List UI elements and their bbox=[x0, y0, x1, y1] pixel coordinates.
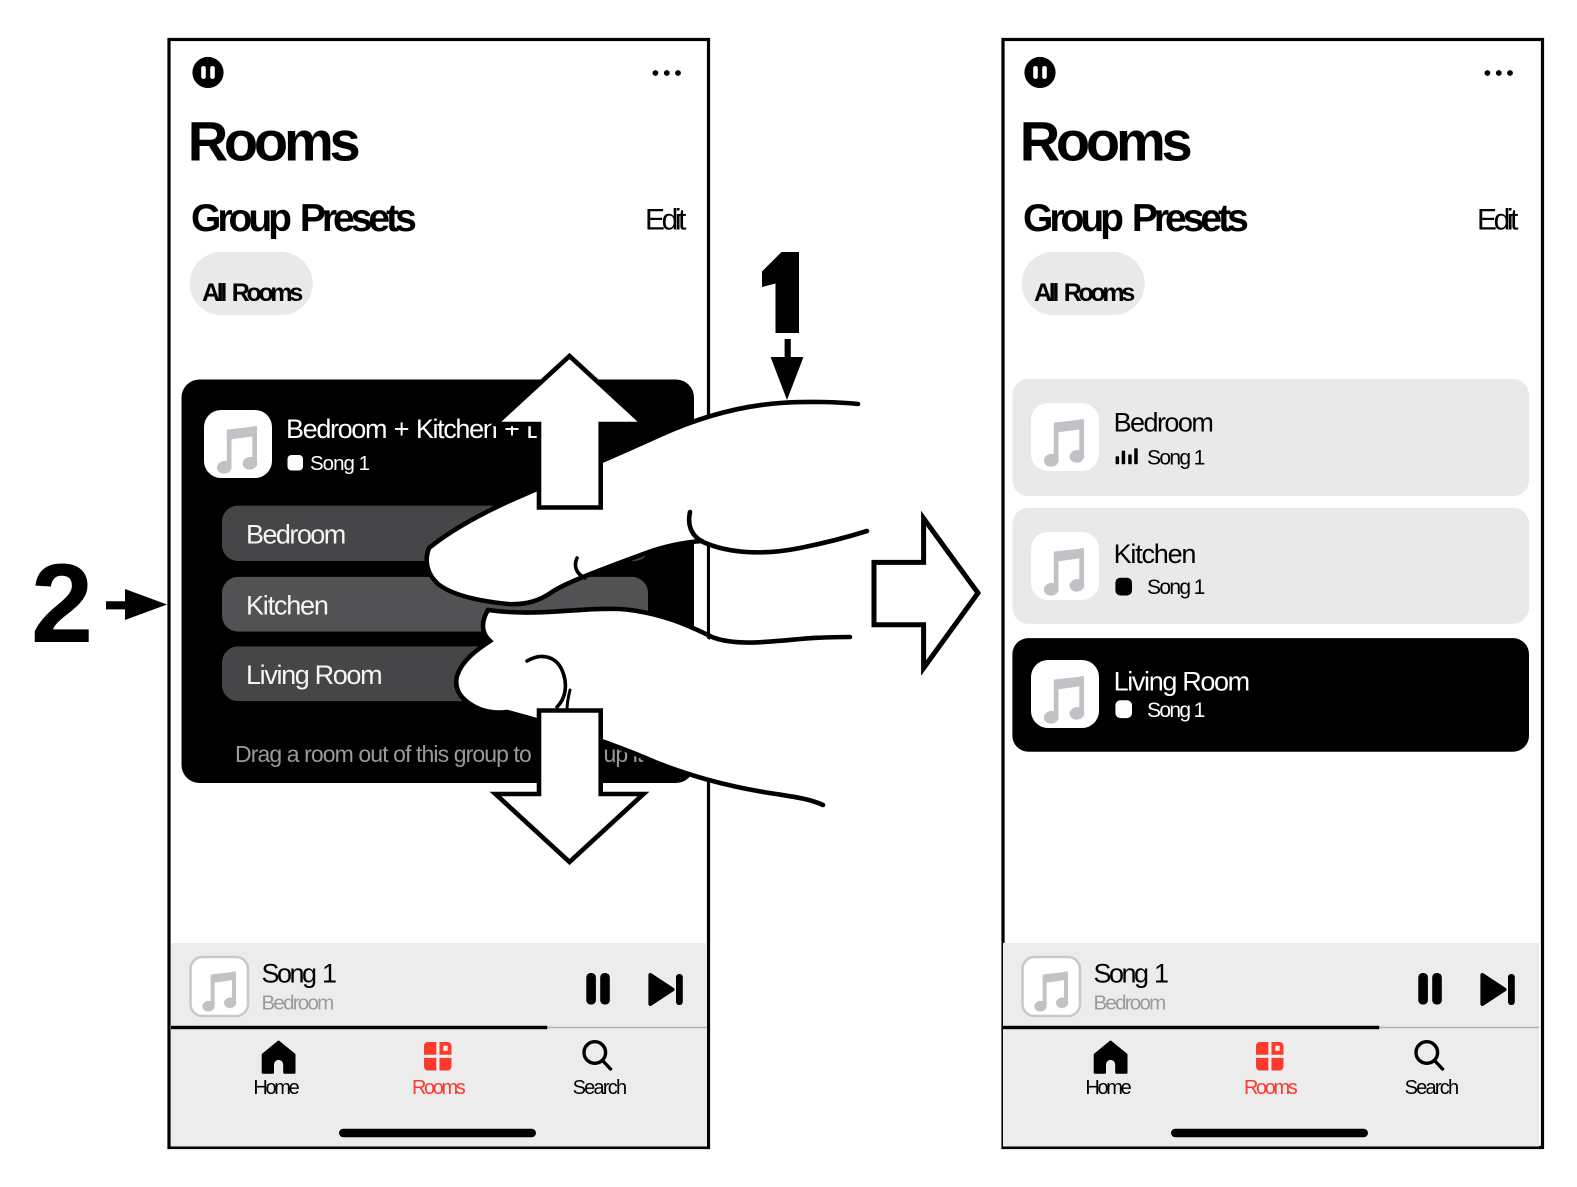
svg-text:Song 1: Song 1 bbox=[1147, 447, 1205, 470]
svg-text:Kitchen: Kitchen bbox=[1114, 539, 1196, 569]
svg-text:Home: Home bbox=[253, 1077, 299, 1099]
svg-text:Living Room: Living Room bbox=[1114, 667, 1249, 697]
svg-text:Bedroom: Bedroom bbox=[262, 992, 334, 1015]
svg-text:Edit: Edit bbox=[1477, 204, 1519, 237]
svg-text:Edit: Edit bbox=[645, 204, 687, 237]
svg-text:Bedroom: Bedroom bbox=[1114, 407, 1213, 437]
svg-text:Group Presets: Group Presets bbox=[191, 197, 416, 240]
svg-text:Song 1: Song 1 bbox=[1147, 699, 1205, 722]
svg-text:Drag a room out of this group: Drag a room out of this group to bbox=[235, 741, 531, 767]
svg-text:Rooms: Rooms bbox=[412, 1077, 466, 1099]
svg-text:Rooms: Rooms bbox=[188, 110, 359, 173]
svg-text:Group Presets: Group Presets bbox=[1023, 197, 1248, 240]
svg-text:Song 1: Song 1 bbox=[310, 452, 370, 475]
svg-text:Search: Search bbox=[573, 1077, 626, 1099]
svg-text:Song 1: Song 1 bbox=[262, 959, 337, 989]
svg-text:All Rooms: All Rooms bbox=[202, 279, 302, 307]
svg-text:All Rooms: All Rooms bbox=[1034, 279, 1134, 307]
svg-text:2: 2 bbox=[31, 541, 93, 666]
svg-text:Living Room: Living Room bbox=[246, 660, 381, 690]
svg-text:Kitchen: Kitchen bbox=[246, 590, 328, 620]
svg-text:Bedroom: Bedroom bbox=[246, 520, 345, 550]
svg-text:Rooms: Rooms bbox=[1020, 110, 1191, 173]
svg-text:Song 1: Song 1 bbox=[1147, 576, 1205, 599]
